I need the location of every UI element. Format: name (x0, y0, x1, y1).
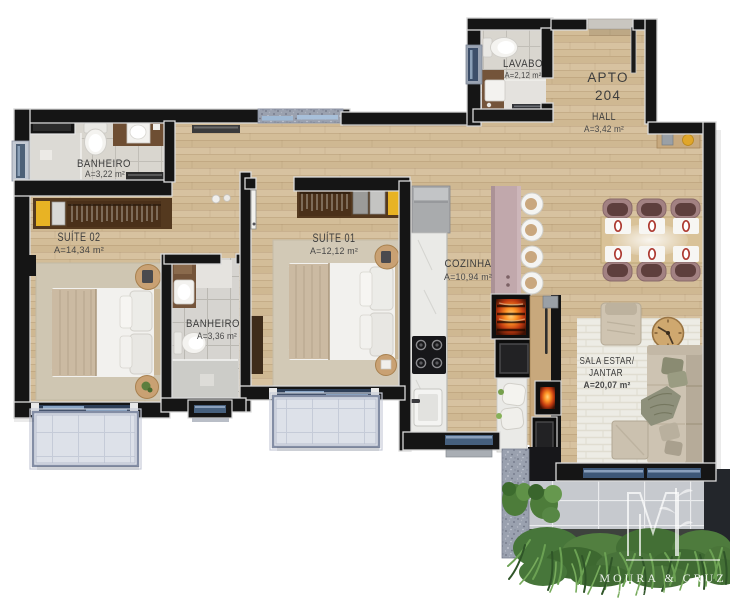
svg-text:A=3,36 m²: A=3,36 m² (197, 331, 237, 341)
svg-text:A=3,22 m²: A=3,22 m² (85, 169, 125, 179)
svg-text:LAVABO: LAVABO (503, 58, 543, 70)
svg-text:BANHEIRO: BANHEIRO (186, 318, 240, 330)
svg-text:204: 204 (595, 88, 621, 103)
svg-text:A=2,12 m²: A=2,12 m² (505, 71, 542, 80)
svg-text:APTO: APTO (587, 70, 628, 85)
svg-text:HALL: HALL (592, 111, 616, 123)
svg-text:A=10,94 m²: A=10,94 m² (444, 272, 492, 282)
svg-text:A=14,34 m²: A=14,34 m² (54, 245, 104, 255)
svg-text:SALA ESTAR/: SALA ESTAR/ (580, 355, 635, 367)
svg-text:COZINHA: COZINHA (445, 258, 492, 270)
svg-text:A=3,42 m²: A=3,42 m² (584, 124, 624, 134)
svg-text:A=12,12 m²: A=12,12 m² (310, 246, 358, 256)
svg-text:SUÍTE 01: SUÍTE 01 (313, 231, 356, 245)
svg-text:A=20,07 m²: A=20,07 m² (584, 380, 631, 390)
svg-text:MOURA & CRUZ: MOURA & CRUZ (599, 571, 726, 585)
svg-text:JANTAR: JANTAR (589, 367, 623, 379)
svg-text:CONSTRUTORA E INCORPORADORA: CONSTRUTORA E INCORPORADORA (608, 590, 730, 596)
svg-text:SUÍTE 02: SUÍTE 02 (58, 230, 101, 244)
